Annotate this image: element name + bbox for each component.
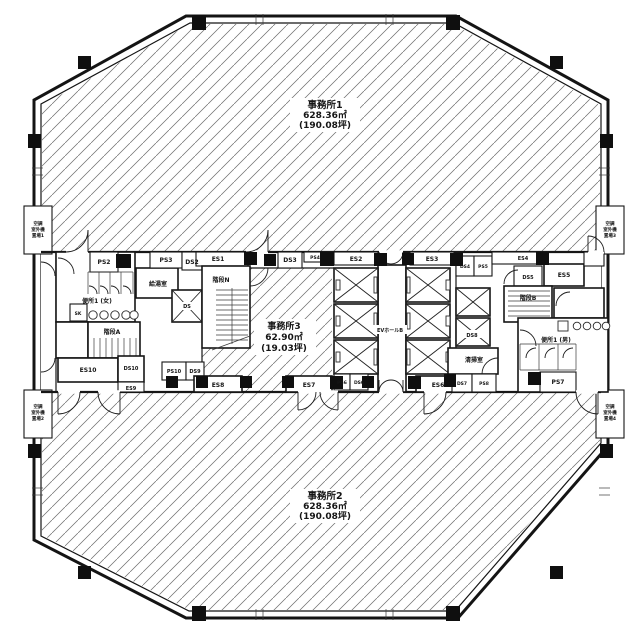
- ds8-label: DS8: [466, 333, 478, 339]
- ds7-label: DS7: [457, 381, 467, 387]
- toilet-men-label: 便所1 (男): [541, 336, 571, 344]
- small-room-left: [56, 322, 88, 358]
- ds4-label: DS4: [460, 264, 470, 270]
- stair-a-label: 階段A: [104, 328, 121, 336]
- ac-bay-2-line2: 室外機: [31, 409, 45, 416]
- elevator-shafts-left: [334, 268, 378, 374]
- floor-plan-page: 事務所1 628.36㎡ (190.08坪) 事務所2 628.36㎡ (190…: [0, 0, 640, 636]
- office2-name: 事務所2: [307, 490, 342, 502]
- stair-n-label: 階段N: [212, 276, 229, 284]
- office1-name: 事務所1: [307, 99, 342, 111]
- es2-label: ES2: [350, 256, 363, 263]
- office2-area: 628.36㎡: [303, 500, 347, 512]
- ds6-label: DS6: [354, 380, 364, 386]
- ps6-label: PS6: [337, 380, 347, 386]
- ac-bay-1-line3: 置場1: [32, 232, 44, 239]
- ps4-label: PS4: [310, 255, 320, 261]
- ds9-label: DS9: [189, 369, 201, 375]
- toilet-women-label: 便所1 (女): [82, 297, 112, 305]
- stair-b-room: [504, 286, 552, 322]
- floor-plan-drawing: 事務所1 628.36㎡ (190.08坪) 事務所2 628.36㎡ (190…: [0, 0, 640, 636]
- toilet-women-basins: [89, 311, 138, 319]
- es7-label: ES7: [303, 382, 316, 389]
- ev-hall-label: EVホールB: [377, 327, 403, 334]
- ds2-label: DS2: [185, 259, 198, 266]
- cleaning-label: 清掃室: [465, 356, 483, 364]
- ac-bay-3-line3: 置場3: [604, 232, 616, 239]
- stair-a-room: [88, 322, 140, 358]
- office3-tsubo: (19.03坪): [261, 342, 307, 354]
- ps2-label: PS2: [98, 259, 111, 266]
- es3-label: ES3: [426, 256, 439, 263]
- office1-tsubo: (190.08坪): [299, 119, 351, 131]
- es4-label: ES4: [518, 256, 529, 262]
- top-right-room: [584, 252, 604, 266]
- ds1-label: DS: [183, 304, 191, 310]
- es10-label: ES10: [80, 367, 97, 374]
- ps10-label: PS10: [167, 369, 182, 375]
- kitchenette-label: 給湯室: [149, 280, 167, 288]
- ac-bay-4-line3: 置場4: [604, 415, 616, 422]
- ac-bay-4-line2: 室外機: [603, 409, 617, 416]
- ps5-label: PS5: [478, 264, 488, 270]
- office3-name: 事務所3: [267, 320, 300, 332]
- ac-bay-1-line1: 空調: [34, 220, 43, 227]
- es6-label: ES6: [432, 382, 445, 389]
- ac-bay-3-line2: 室外機: [603, 226, 617, 233]
- stair-b-label: 階段B: [520, 294, 537, 302]
- es9-label: ES9: [126, 386, 137, 392]
- ac-bay-1-line2: 室外機: [31, 226, 45, 233]
- office2-tsubo: (190.08坪): [299, 510, 351, 522]
- ps7-label: PS7: [552, 379, 565, 386]
- ps8-label: PS8: [479, 381, 489, 387]
- office3-area: 62.90㎡: [265, 331, 302, 343]
- es8-label: ES8: [212, 382, 225, 389]
- elevator-shafts-right: [406, 268, 450, 374]
- office1-area: 628.36㎡: [303, 109, 347, 121]
- es1-label: ES1: [212, 256, 225, 263]
- ac-bay-2-line1: 空調: [34, 403, 43, 410]
- ds10-label: DS10: [124, 366, 139, 372]
- slop-sink-label: SK: [75, 311, 82, 317]
- es4-shaft: [492, 252, 538, 264]
- ds3-label: DS3: [283, 257, 296, 264]
- ac-bay-2-line3: 置場2: [32, 415, 44, 422]
- ac-bay-4-line1: 空調: [606, 403, 615, 410]
- ds5-label: DS5: [522, 275, 534, 281]
- ac-bay-3-line1: 空調: [606, 220, 615, 227]
- es5-label: ES5: [558, 272, 571, 279]
- ps3-label: PS3: [160, 257, 173, 264]
- right-side-room: [554, 288, 604, 318]
